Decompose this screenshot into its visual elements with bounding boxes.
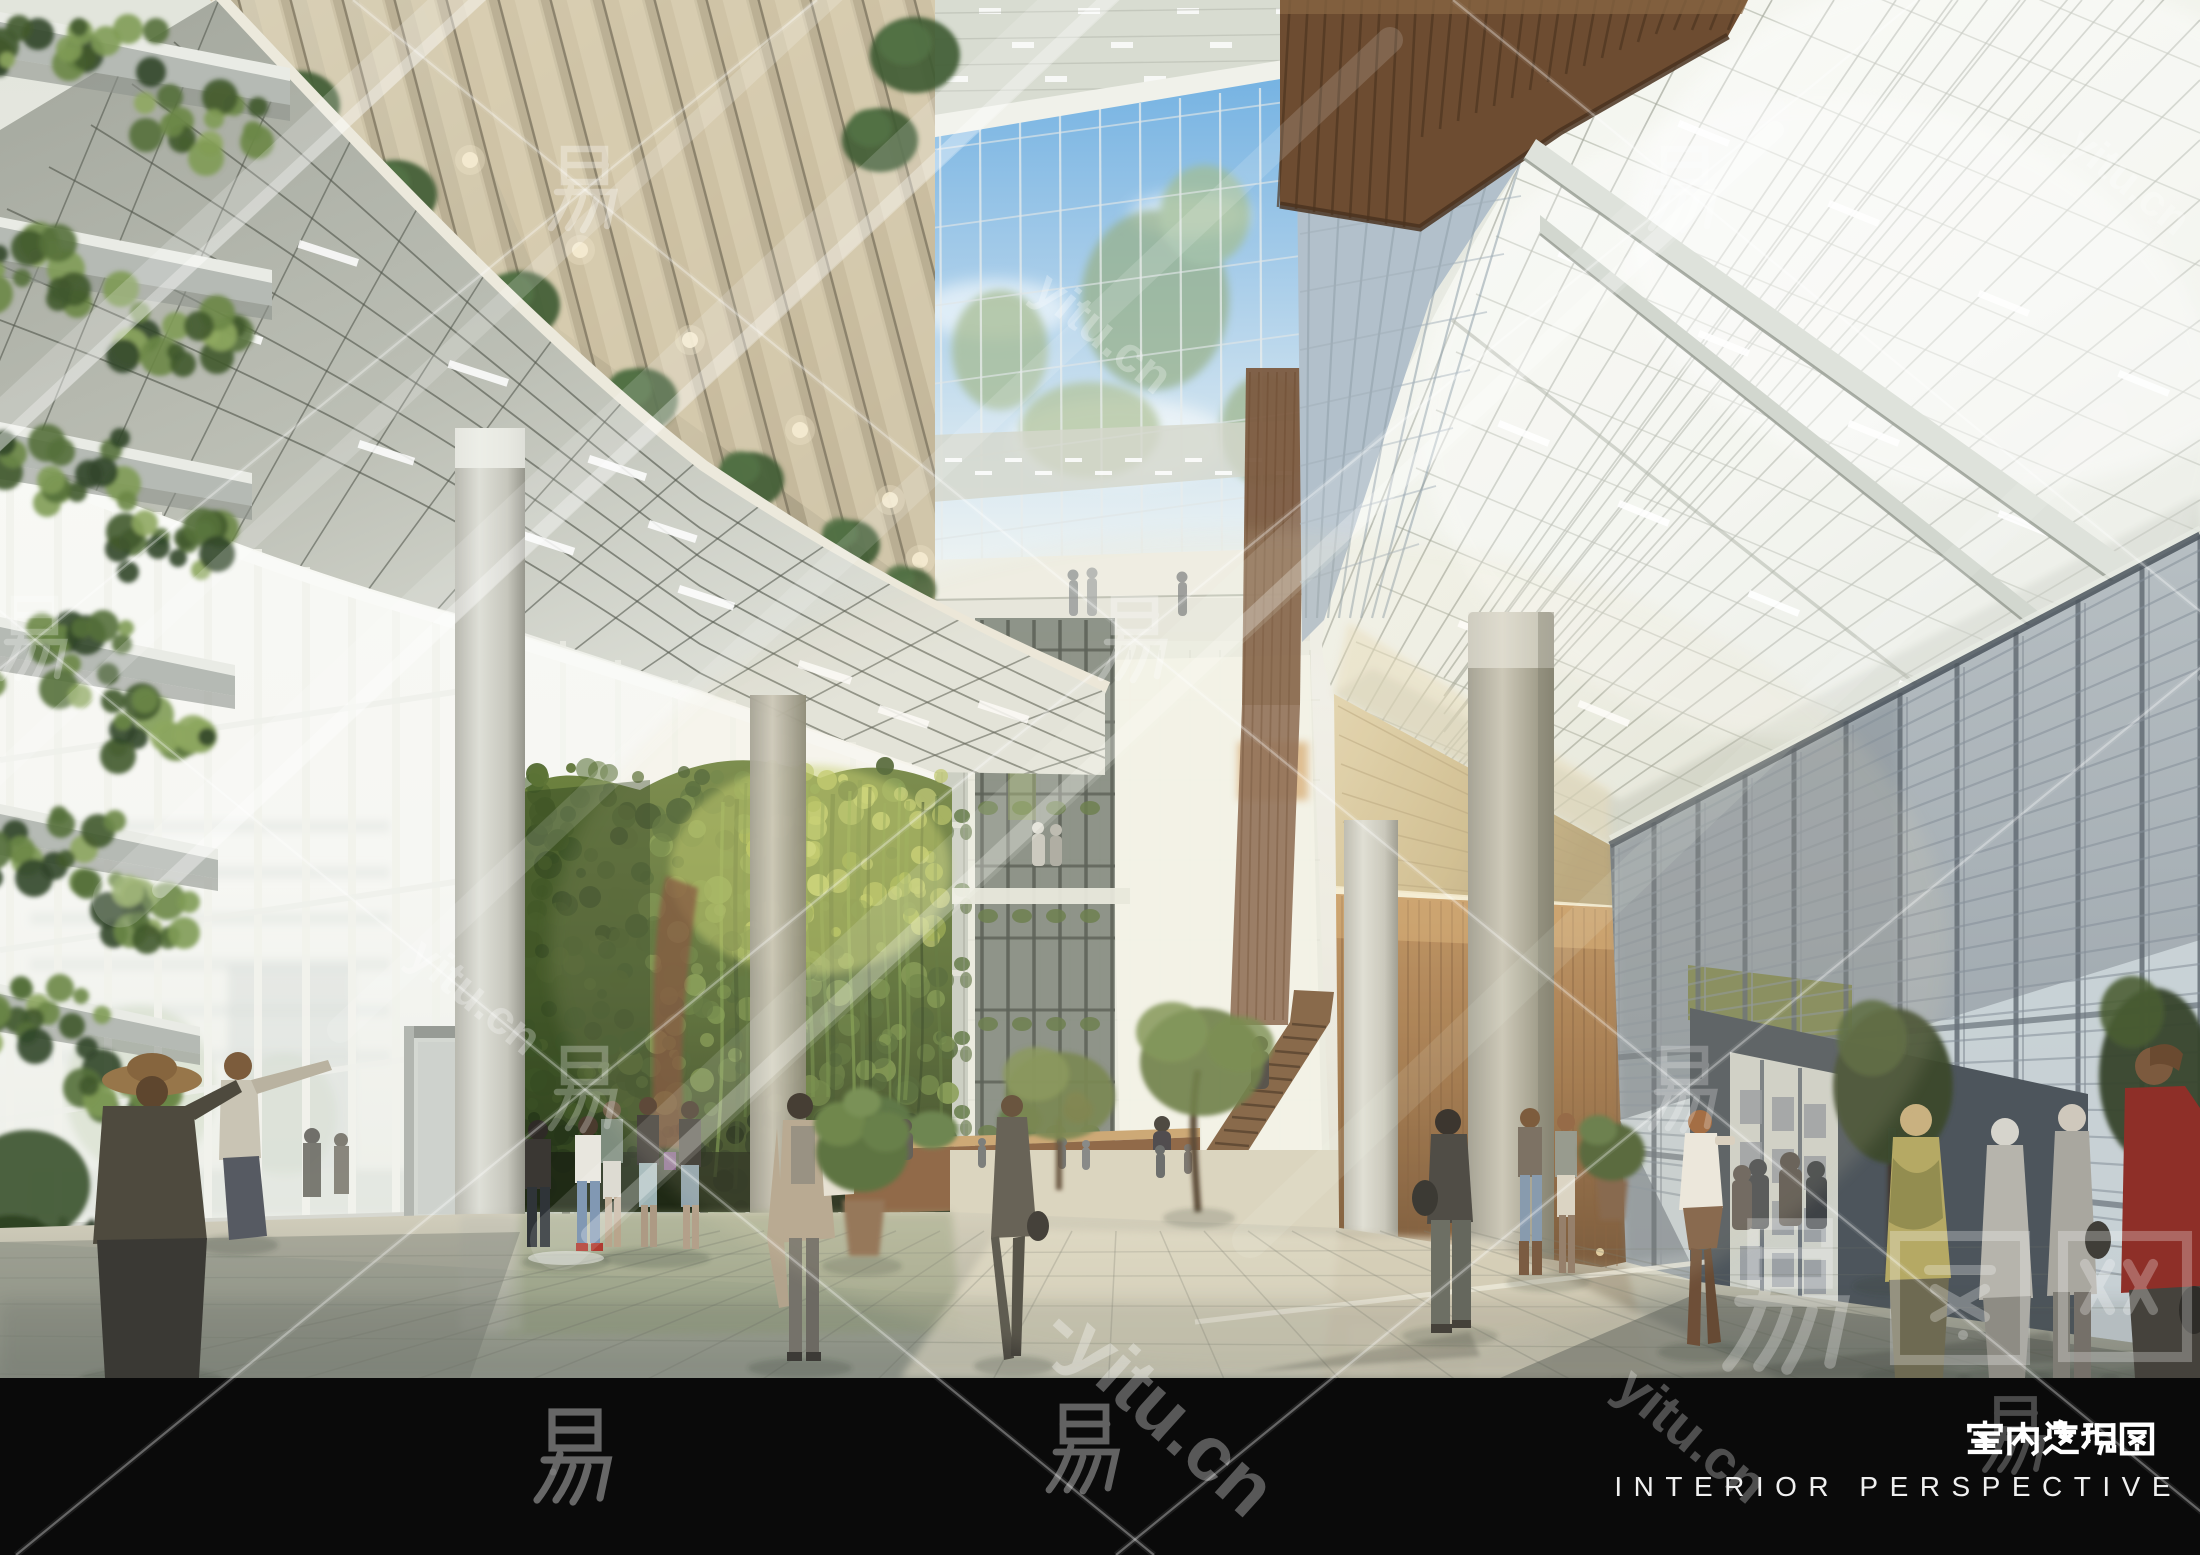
svg-text:INTERIOR PERSPECTIVE: INTERIOR PERSPECTIVE [1614, 1471, 2182, 1502]
